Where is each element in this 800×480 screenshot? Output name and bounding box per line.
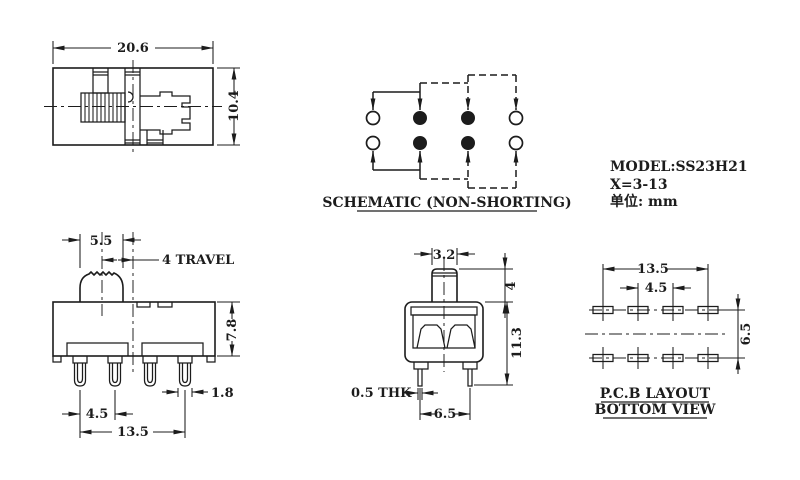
pad-column-lines — [603, 264, 708, 369]
terminal-filled — [414, 112, 427, 125]
dim-travel: 4 TRAVEL — [102, 253, 234, 268]
dim-row-spacing-label: 6.5 — [739, 323, 754, 346]
model-number: MODEL:SS23H21 — [610, 159, 748, 175]
dim-knob-width-label: 5.5 — [90, 234, 113, 249]
dim-pad-pitch-label: 4.5 — [645, 281, 668, 296]
dim-row-spacing: 6.5 — [720, 294, 754, 374]
dim-knob-width: 5.5 — [62, 234, 141, 268]
dim-side-pin-spacing-label: 6.5 — [434, 407, 457, 422]
hatch-lines — [85, 93, 121, 122]
actuator-cross-piece — [140, 92, 190, 145]
schematic-title: SCHEMATIC (NON-SHORTING) — [322, 195, 571, 211]
dim-pin-span-label: 13.5 — [117, 425, 149, 440]
dim-body-height-label: 7.8 — [225, 319, 240, 342]
dim-knob-height: 4 — [459, 253, 519, 318]
terminal-open — [367, 137, 380, 150]
front-knob — [80, 272, 123, 302]
pcb-layout-view: 13.5 4.5 6.5 P.C.B LAYOUT BOTTOM VIEW — [585, 262, 754, 418]
front-pins — [73, 356, 192, 386]
dim-pad-pitch: 4.5 — [620, 281, 691, 296]
dim-total-height: 11.3 — [474, 302, 525, 385]
drawing-canvas: 20.6 10.4 — [0, 0, 800, 480]
schematic-terminals — [367, 112, 523, 150]
dim-knob-height-label: 4 — [504, 281, 519, 290]
model-x-range: X=3-13 — [610, 177, 668, 193]
dim-pin-thickness-label: 0.5 THK — [351, 386, 412, 401]
dim-total-height-label: 11.3 — [510, 327, 525, 359]
unit-label: 单位: mm — [610, 193, 678, 210]
dim-side-knob-width-label: 3.2 — [433, 248, 456, 263]
mounting-foot — [207, 356, 215, 362]
dim-pin-width: 1.8 — [162, 386, 234, 401]
pcb-layout-title: P.C.B LAYOUT — [600, 386, 711, 402]
engineering-drawing-sheet: 20.6 10.4 — [0, 0, 800, 480]
dim-side-knob-width: 3.2 — [414, 248, 475, 265]
model-info: MODEL:SS23H21 X=3-13 单位: mm — [610, 159, 748, 210]
dim-top-height-label: 10.4 — [227, 90, 242, 122]
schematic-bottom-links — [373, 151, 516, 188]
dim-top-width-label: 20.6 — [117, 41, 149, 56]
terminal-open — [510, 112, 523, 125]
schematic-view: SCHEMATIC (NON-SHORTING) — [322, 75, 571, 211]
schematic-top-links — [373, 75, 516, 110]
dim-travel-label: 4 TRAVEL — [162, 253, 234, 268]
pin-stub-left — [414, 362, 428, 369]
contact-mound-left — [417, 325, 445, 348]
dim-pin-width-label: 1.8 — [211, 386, 234, 401]
dim-pad-span-label: 13.5 — [637, 262, 669, 277]
top-view: 20.6 10.4 — [44, 41, 242, 152]
terminal-open — [510, 137, 523, 150]
terminal-filled — [414, 137, 427, 150]
side-pin-left — [418, 369, 422, 386]
mounting-foot — [53, 356, 61, 362]
dim-body-height: 7.8 — [217, 302, 240, 356]
side-pin-right — [468, 369, 472, 386]
terminal-base-left — [67, 343, 128, 356]
bottom-view-title: BOTTOM VIEW — [595, 402, 716, 418]
dim-pin-pitch-label: 4.5 — [86, 407, 109, 422]
pin-stub-right — [463, 362, 477, 369]
terminal-open — [367, 112, 380, 125]
dim-pin-thickness: 0.5 THK — [351, 386, 438, 401]
terminal-filled — [462, 112, 475, 125]
front-view: 5.5 4 TRAVEL 7.8 1.8 4.5 — [53, 232, 240, 440]
side-knob — [432, 269, 457, 302]
front-body-outline — [53, 302, 215, 356]
slider-knob-hatched — [81, 93, 125, 122]
dim-pad-span: 13.5 — [603, 262, 708, 277]
top-tab-left — [93, 68, 108, 93]
side-view: 3.2 4 11.3 0.5 THK 6.5 — [351, 248, 525, 422]
terminal-base-right — [142, 343, 203, 356]
terminal-filled — [462, 137, 475, 150]
contact-mound-right — [447, 325, 475, 348]
